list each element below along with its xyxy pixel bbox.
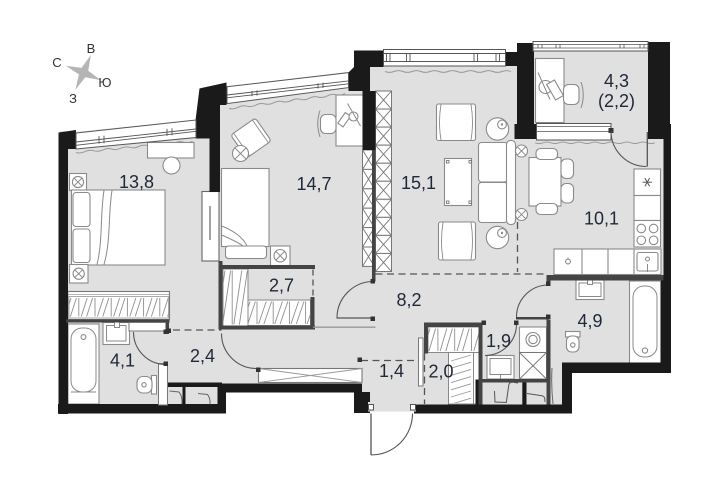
svg-text:4,3: 4,3 (604, 71, 629, 91)
svg-text:4,9: 4,9 (577, 311, 602, 331)
svg-text:З: З (69, 91, 77, 106)
svg-text:14,7: 14,7 (296, 174, 331, 194)
svg-text:С: С (52, 55, 61, 70)
svg-text:(2,2): (2,2) (598, 91, 635, 111)
svg-text:1,9: 1,9 (486, 331, 511, 351)
svg-text:13,8: 13,8 (119, 172, 154, 192)
svg-text:В: В (87, 41, 96, 56)
svg-text:Ю: Ю (98, 75, 111, 90)
svg-text:15,1: 15,1 (401, 173, 436, 193)
svg-text:4,1: 4,1 (110, 351, 135, 371)
svg-text:10,1: 10,1 (584, 209, 619, 229)
svg-text:8,2: 8,2 (396, 290, 421, 310)
svg-text:1,4: 1,4 (379, 361, 404, 381)
svg-text:2,4: 2,4 (190, 346, 215, 366)
svg-text:2,0: 2,0 (428, 362, 453, 382)
svg-text:2,7: 2,7 (269, 276, 294, 296)
